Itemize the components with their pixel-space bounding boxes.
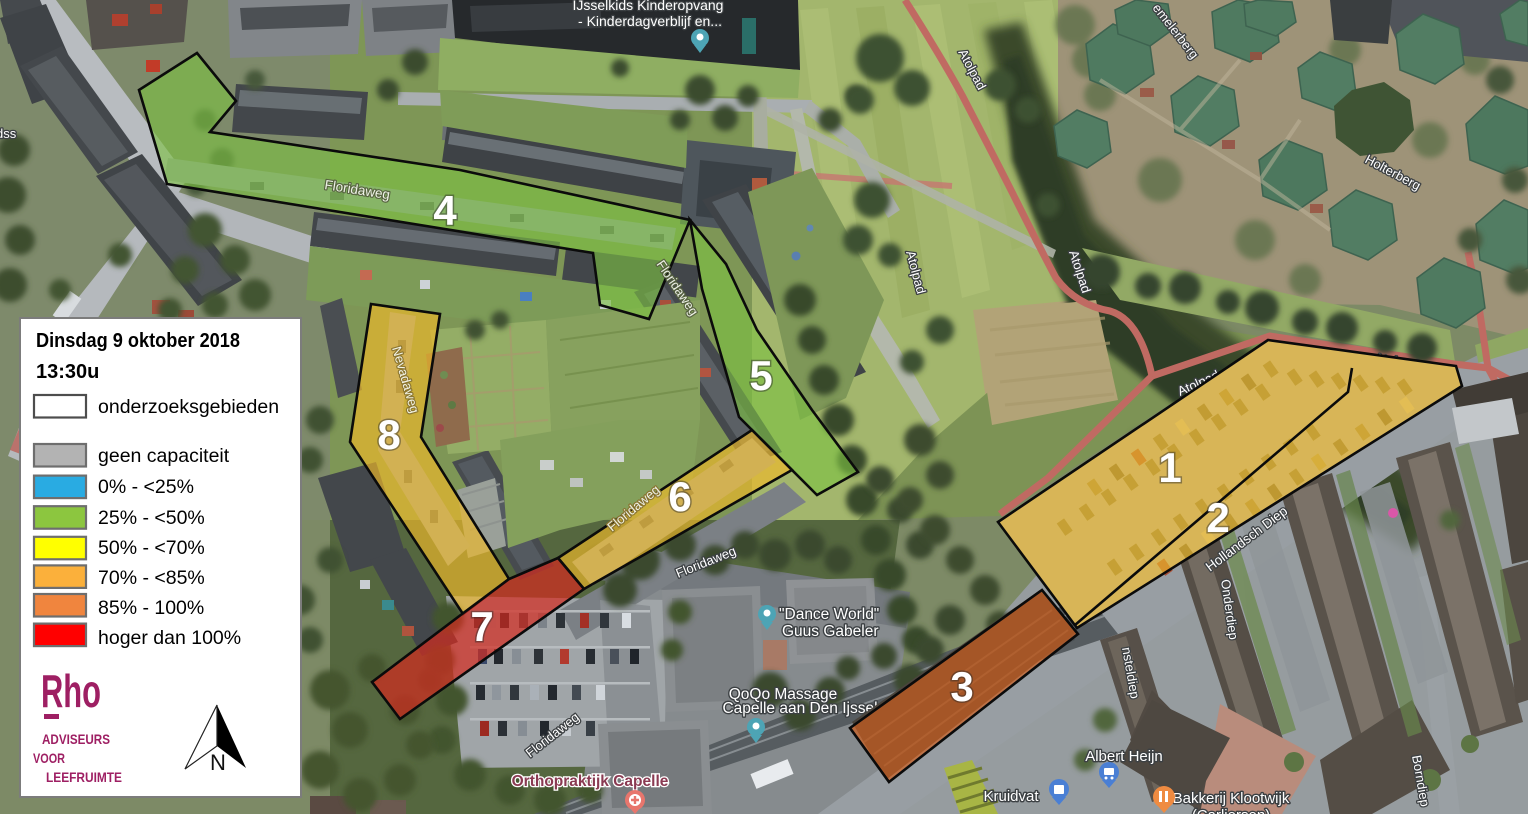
svg-text:0% - <25%: 0% - <25% (98, 476, 194, 498)
svg-text:7: 7 (470, 603, 493, 650)
svg-text:Orthopraktijk Capelle: Orthopraktijk Capelle (512, 773, 669, 790)
svg-text:Albert Heijn: Albert Heijn (1085, 748, 1163, 765)
svg-text:Kruidvat: Kruidvat (983, 788, 1039, 805)
svg-text:N: N (210, 750, 226, 775)
svg-text:85% - 100%: 85% - 100% (98, 597, 204, 619)
svg-text:IJsselkids Kinderopvang: IJsselkids Kinderopvang (573, 0, 724, 13)
svg-text:- Kinderdagverblijf en...: - Kinderdagverblijf en... (578, 13, 722, 29)
svg-text:"Dance World": "Dance World" (779, 606, 879, 623)
svg-text:dss: dss (0, 126, 17, 141)
svg-text:13:30u: 13:30u (36, 361, 99, 383)
svg-text:4: 4 (433, 187, 457, 234)
svg-text:3: 3 (950, 663, 973, 710)
svg-text:70% - <85%: 70% - <85% (98, 567, 205, 589)
svg-text:VOOR: VOOR (33, 750, 65, 766)
svg-text:(Carliersen): (Carliersen) (1192, 807, 1270, 814)
svg-text:onderzoeksgebieden: onderzoeksgebieden (98, 396, 279, 418)
svg-text:50% - <70%: 50% - <70% (98, 537, 205, 559)
svg-text:8: 8 (377, 411, 400, 458)
svg-text:25% - <50%: 25% - <50% (98, 507, 205, 529)
svg-text:Capelle aan Den Ijssel: Capelle aan Den Ijssel (722, 700, 877, 717)
svg-text:Rho: Rho (41, 665, 101, 717)
svg-text:Bakkerij Klootwijk: Bakkerij Klootwijk (1173, 790, 1290, 807)
svg-text:hoger dan 100%: hoger dan 100% (98, 627, 241, 649)
svg-text:geen capaciteit: geen capaciteit (98, 445, 230, 467)
svg-text:Guus Gabeler: Guus Gabeler (782, 623, 879, 640)
svg-text:2: 2 (1206, 494, 1229, 541)
svg-text:1: 1 (1158, 444, 1181, 491)
svg-text:LEEFRUIMTE: LEEFRUIMTE (46, 769, 122, 785)
svg-text:5: 5 (749, 352, 772, 399)
svg-text:6: 6 (668, 473, 691, 520)
svg-text:Dinsdag 9 oktober 2018: Dinsdag 9 oktober 2018 (36, 330, 240, 352)
svg-text:ADVISEURS: ADVISEURS (42, 731, 110, 747)
